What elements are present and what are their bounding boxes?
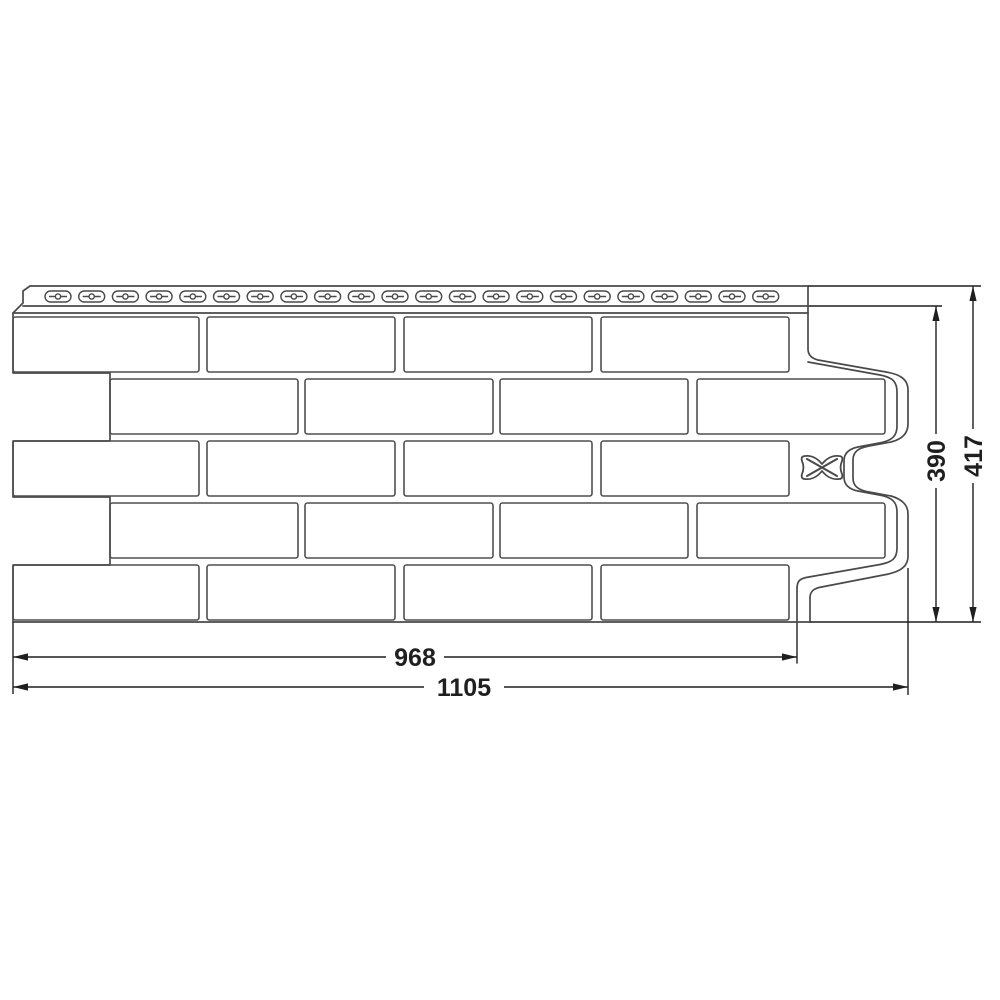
nail-slot xyxy=(652,291,678,302)
arrow-down-417 xyxy=(969,607,976,622)
dim-label-968: 968 xyxy=(394,644,436,672)
nail-slot-strip xyxy=(45,291,779,302)
nail-slot xyxy=(618,291,644,302)
brick xyxy=(305,503,493,558)
arrow-down-390 xyxy=(932,607,939,622)
nail-slot xyxy=(79,291,105,302)
nail-slot xyxy=(247,291,273,302)
dimension-labels: 968 1105 390 417 xyxy=(394,435,988,702)
brick xyxy=(305,379,493,434)
brick xyxy=(207,317,395,372)
nail-slot xyxy=(45,291,71,302)
dim-label-417: 417 xyxy=(960,435,988,477)
brick xyxy=(404,441,592,496)
brick xyxy=(500,379,688,434)
brick xyxy=(601,565,789,620)
arrow-up-390 xyxy=(932,306,939,321)
nail-slot xyxy=(214,291,240,302)
extension-lines xyxy=(13,286,981,695)
brick xyxy=(13,565,199,620)
brick xyxy=(697,379,885,434)
brick xyxy=(404,317,592,372)
arrow-up-417 xyxy=(969,286,976,301)
panel-outer-contour xyxy=(13,286,908,622)
nail-slot xyxy=(753,291,779,302)
nail-slot xyxy=(719,291,745,302)
dim-label-390: 390 xyxy=(923,440,951,482)
brick xyxy=(110,503,298,558)
nail-slot xyxy=(112,291,138,302)
brick xyxy=(500,503,688,558)
nail-slot xyxy=(348,291,374,302)
right-edge-fold-line xyxy=(797,362,897,663)
brick xyxy=(207,565,395,620)
brick xyxy=(207,441,395,496)
dim-label-1105: 1105 xyxy=(437,674,491,702)
brick xyxy=(13,441,199,496)
nail-slot xyxy=(483,291,509,302)
arrow-right-968 xyxy=(782,653,797,660)
arrow-left-1105 xyxy=(13,683,28,690)
dimension-arrows xyxy=(13,286,977,691)
nail-slot xyxy=(685,291,711,302)
nail-slot xyxy=(180,291,206,302)
butterfly-cross xyxy=(807,459,837,476)
butterfly-lock-icon xyxy=(802,456,843,479)
arrow-right-1105 xyxy=(893,683,908,690)
brick xyxy=(404,565,592,620)
brick xyxy=(110,379,298,434)
nail-slot xyxy=(281,291,307,302)
brick xyxy=(601,441,789,496)
nail-slot xyxy=(315,291,341,302)
nail-slot xyxy=(146,291,172,302)
nail-slot xyxy=(449,291,475,302)
nail-slot xyxy=(517,291,543,302)
nail-slot xyxy=(416,291,442,302)
nail-slot xyxy=(382,291,408,302)
brick xyxy=(601,317,789,372)
arrow-left-968 xyxy=(13,653,28,660)
nail-slot xyxy=(584,291,610,302)
panel-outline xyxy=(13,286,908,663)
brick xyxy=(697,503,885,558)
drawing-canvas: 968 1105 390 417 xyxy=(0,0,1000,1000)
nail-slot xyxy=(551,291,577,302)
panel-drawing: 968 1105 390 417 xyxy=(0,0,1000,1000)
brick-pattern xyxy=(13,317,885,620)
brick xyxy=(13,317,199,372)
dimension-lines: 968 1105 390 417 xyxy=(13,286,988,702)
